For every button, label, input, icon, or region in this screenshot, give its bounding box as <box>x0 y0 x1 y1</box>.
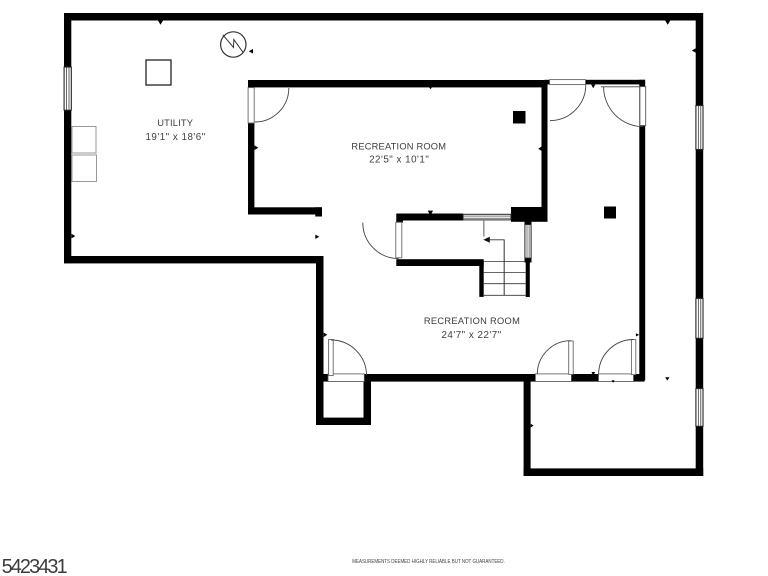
svg-text:19'1" x 18'6": 19'1" x 18'6" <box>145 132 205 143</box>
svg-text:22'5" x 10'1": 22'5" x 10'1" <box>369 155 429 166</box>
svg-text:24'7" x 22'7": 24'7" x 22'7" <box>441 330 501 341</box>
svg-text:RECREATION ROOM: RECREATION ROOM <box>351 141 446 151</box>
svg-text:MEASUREMENTS DEEMED HIGHLY REL: MEASUREMENTS DEEMED HIGHLY RELIABLE BUT … <box>352 558 505 565</box>
svg-text:5423431: 5423431 <box>2 556 68 576</box>
svg-text:UTILITY: UTILITY <box>157 118 193 128</box>
svg-text:RECREATION ROOM: RECREATION ROOM <box>424 316 520 326</box>
